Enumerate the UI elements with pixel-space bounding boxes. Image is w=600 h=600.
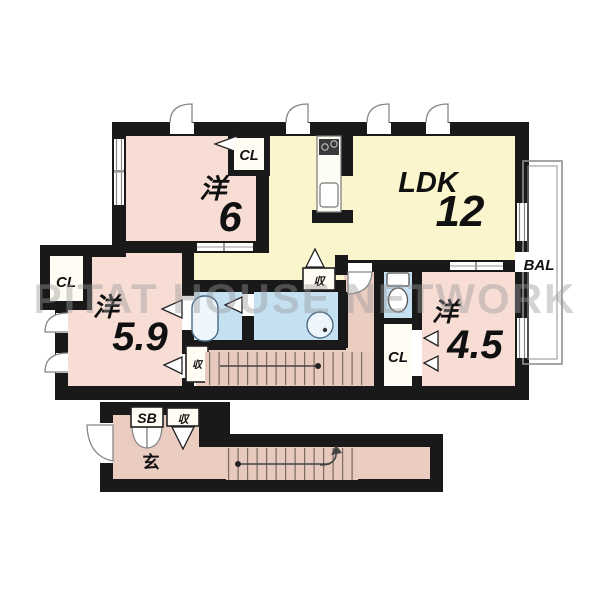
label-closet-mid: CL [388, 349, 408, 366]
wall-stub [335, 255, 348, 275]
floorplan-canvas: 洋 6 LDK 12 洋 5.9 洋 4.5 CL CL CL BAL 収 収 … [0, 0, 600, 600]
door-gap-stairhall [348, 263, 372, 272]
label-closet-top: CL [239, 148, 258, 164]
wall-entrance-bottom [100, 479, 443, 492]
label-ldk-size: 12 [436, 187, 485, 236]
wall-corridor-right [430, 434, 443, 492]
upper-stairs-marker [315, 363, 321, 369]
floorplan-svg: 洋 6 LDK 12 洋 5.9 洋 4.5 CL CL CL BAL 収 収 … [0, 0, 600, 600]
label-bedroom6-size: 6 [218, 193, 242, 240]
lower-stairs-marker [235, 461, 241, 467]
wall-bottom [55, 386, 529, 400]
label-shoebox: SB [137, 410, 156, 426]
wall-corridor-top [218, 434, 443, 447]
upper-stairs [205, 352, 370, 385]
watermark-text: PITAT HOUSE NETWORK [34, 275, 577, 322]
basin-drain [323, 328, 327, 332]
wall-kitchen-right [340, 136, 353, 176]
label-bedroom45-size: 4.5 [446, 323, 503, 367]
label-entrance: 玄 [143, 452, 160, 472]
kitchen-sink [320, 183, 338, 207]
wall-entrance-step [199, 402, 230, 447]
door-gap-closet-mid [412, 330, 422, 376]
kitchen-counter [317, 136, 341, 212]
label-balcony: BAL [524, 257, 555, 274]
